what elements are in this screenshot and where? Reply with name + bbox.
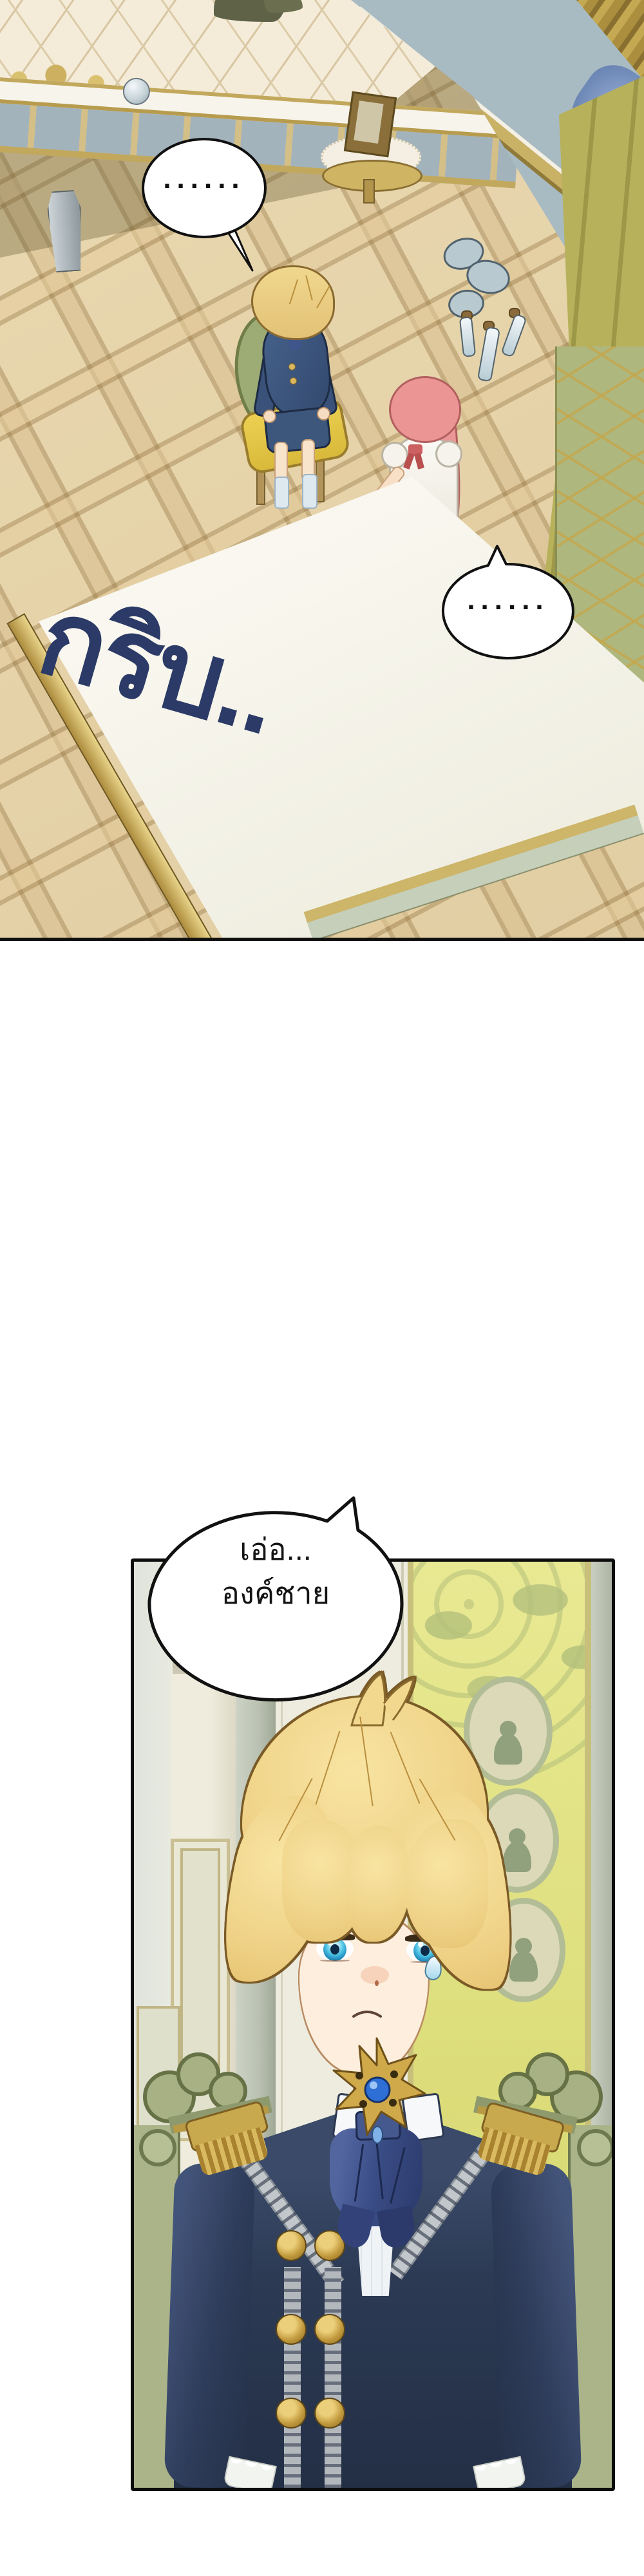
ellipsis-text: ......	[444, 562, 573, 656]
hair-fringe	[404, 1819, 488, 1948]
boy-sock	[302, 474, 317, 509]
tassel	[500, 314, 527, 358]
panel-bedroom-scene: กริบ.. ...... ......	[0, 0, 644, 941]
hair-strand	[289, 279, 298, 305]
boy-character-seated	[237, 265, 353, 510]
jacket-button	[289, 363, 296, 370]
speech-bubble-boy: ......	[137, 129, 273, 278]
boy-sock	[274, 477, 289, 509]
comic-page: กริบ.. ...... ......	[0, 0, 644, 2576]
jacket-button	[290, 377, 297, 384]
boy-hand	[263, 410, 276, 423]
speech-bubble-text: เอ่อ... องค์ชาย	[143, 1528, 408, 1615]
ellipsis-text: ......	[143, 139, 265, 237]
boy-leg	[274, 442, 288, 482]
picture-frame	[344, 91, 397, 158]
speech-line-1: เอ่อ...	[143, 1528, 408, 1571]
hair-strand	[316, 285, 330, 308]
hair-strand	[305, 275, 313, 300]
table-leg	[363, 179, 375, 204]
hair-fringe	[346, 1826, 411, 1942]
puff-sleeve	[435, 440, 462, 468]
tassel	[459, 316, 476, 357]
picture-frame-inner	[354, 100, 383, 144]
boy-hand	[317, 407, 330, 421]
speech-bubble-girl: ......	[437, 540, 582, 662]
side-table	[321, 95, 421, 198]
tassel	[477, 327, 500, 383]
girl-head-red-hair	[389, 376, 461, 443]
speech-line-2: องค์ชาย	[143, 1571, 408, 1615]
